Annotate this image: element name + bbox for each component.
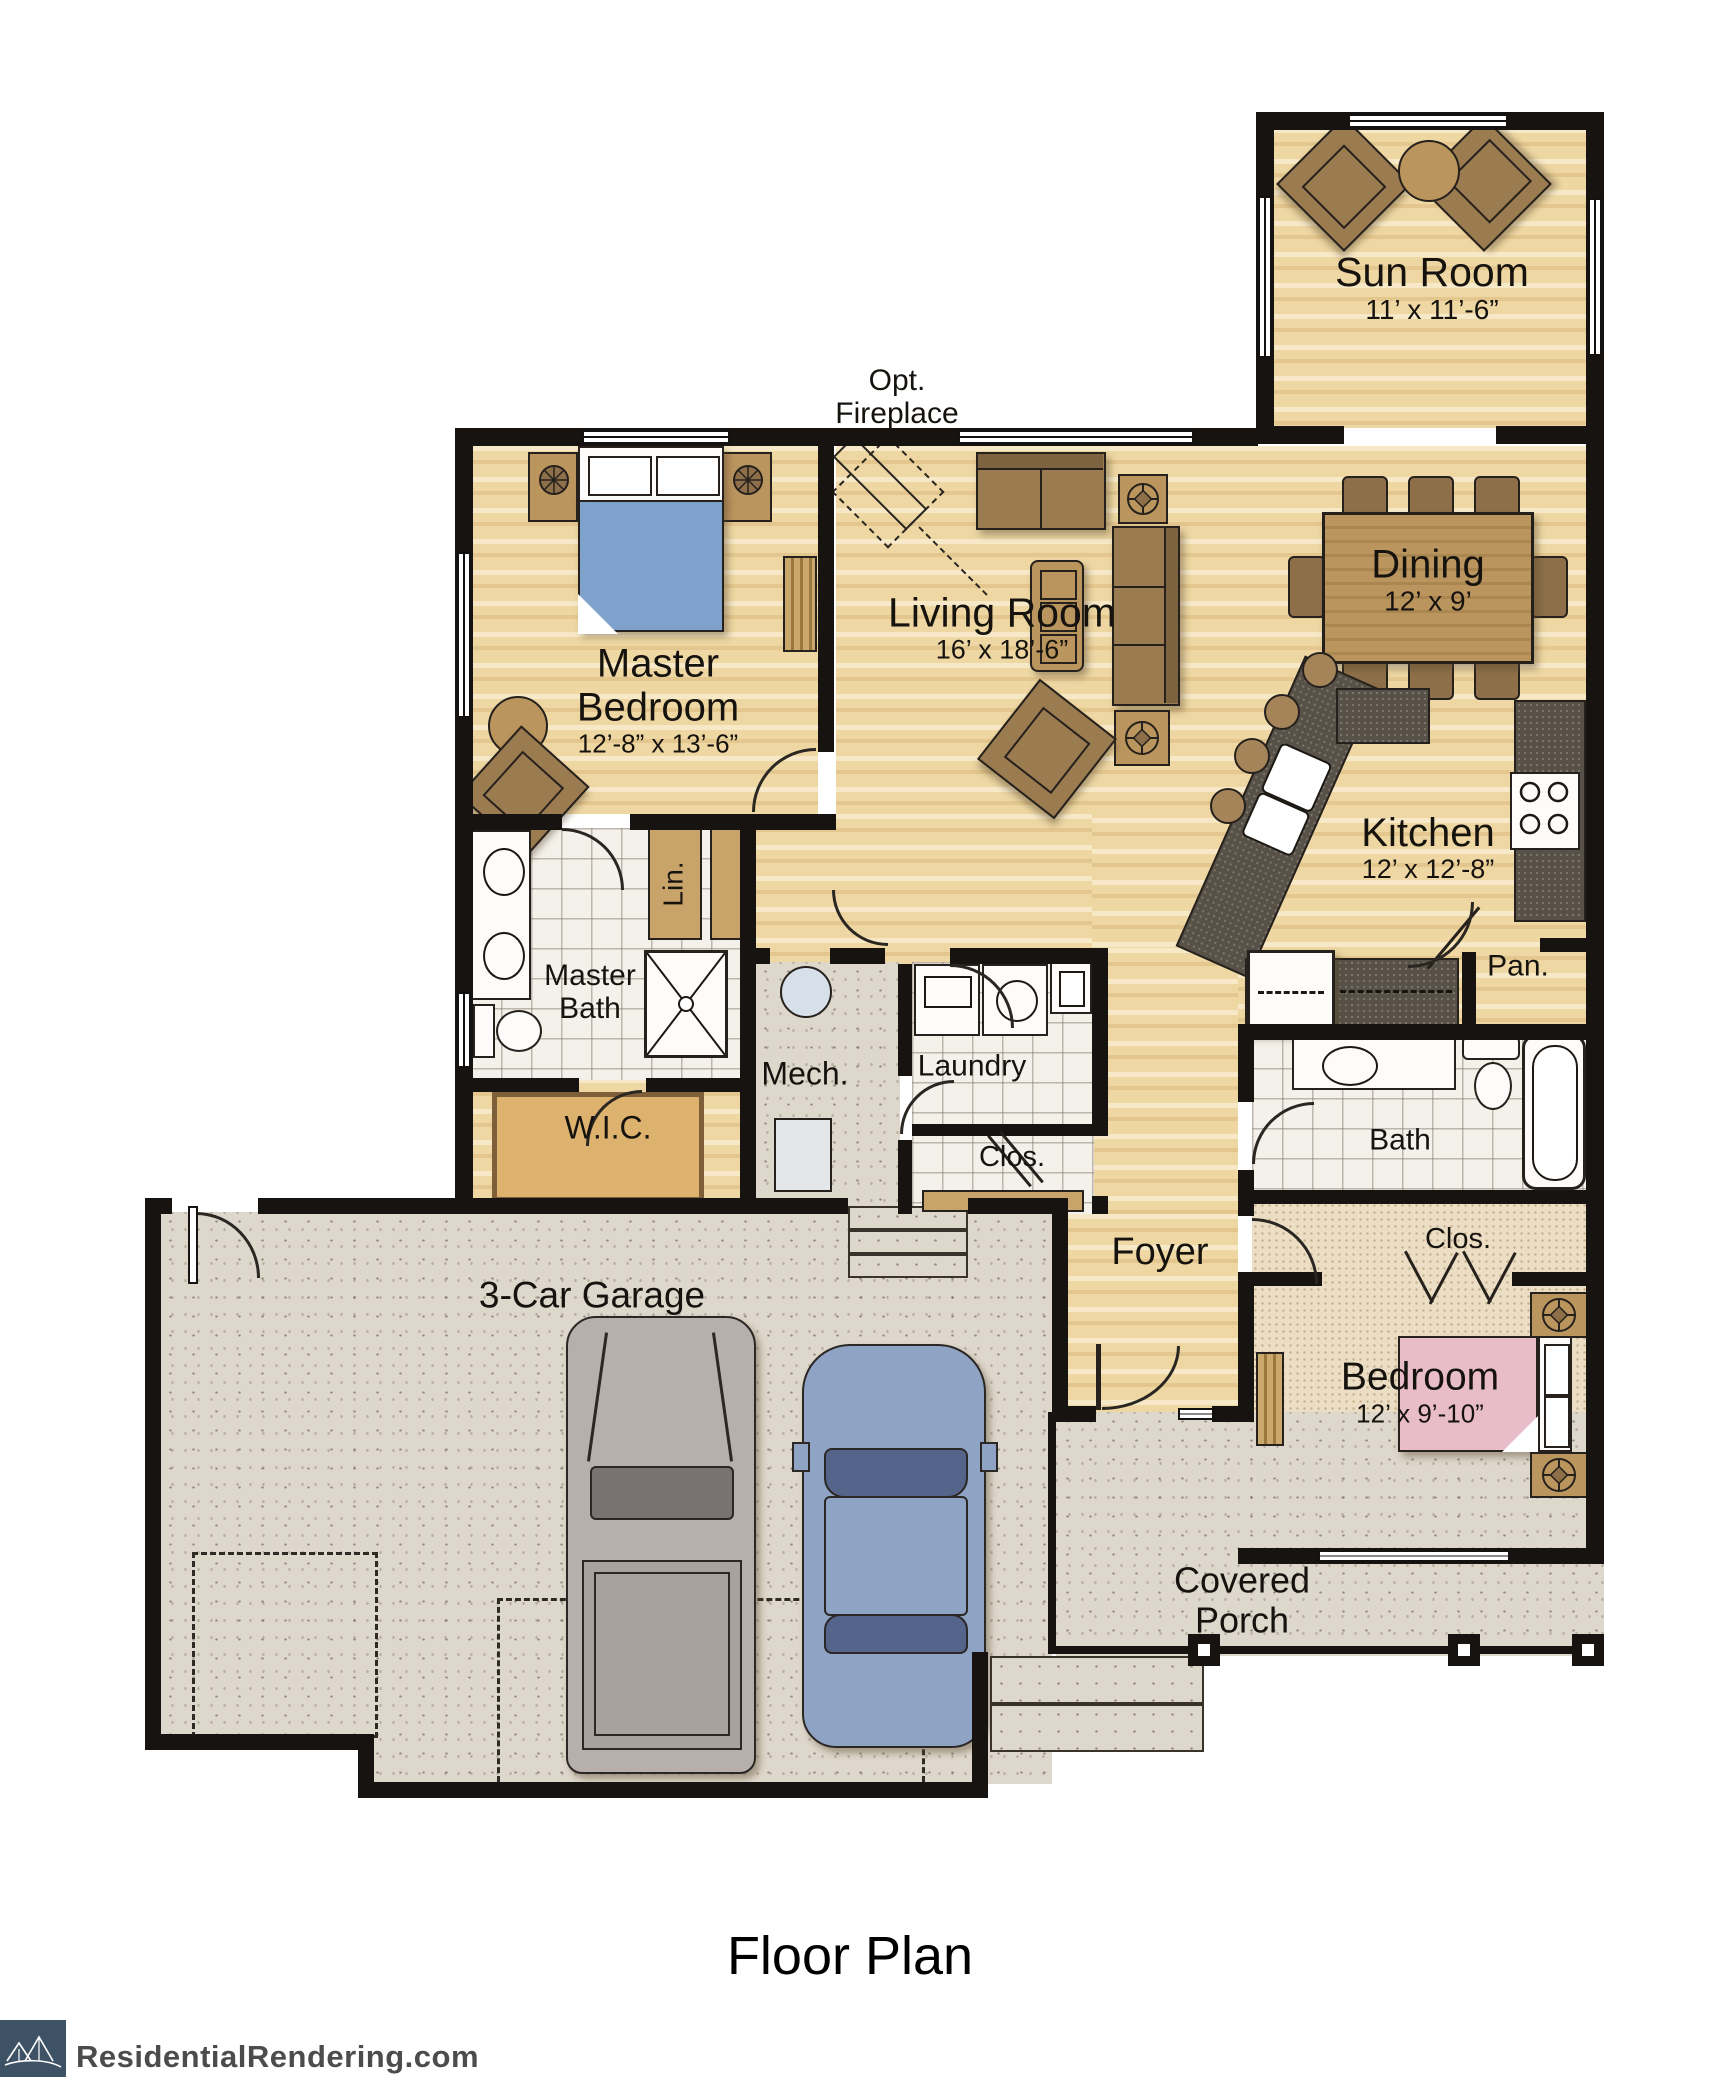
- garage-entry-step-2: [848, 1230, 968, 1254]
- truck-hood-line-right: [712, 1332, 733, 1461]
- room-dims: 12’ x 12’-8”: [1362, 855, 1495, 885]
- room-name: Lin.: [659, 861, 690, 906]
- shower-glass-x: [647, 953, 725, 1055]
- sheet-fold: [578, 594, 618, 634]
- master-bed-headboard: [578, 446, 724, 502]
- truck-windshield: [590, 1466, 734, 1520]
- floor-foyer-upper: [1092, 948, 1238, 1214]
- wall: [1586, 428, 1604, 1564]
- room-name: Covered Porch: [1152, 1560, 1332, 1639]
- chair-seat: [1302, 144, 1387, 229]
- pillow: [1544, 1344, 1570, 1396]
- wall: [145, 1198, 161, 1750]
- residential-rendering-logo-icon: [0, 2020, 66, 2077]
- floor-hall: [756, 814, 1092, 964]
- utility-sink-basin: [1059, 971, 1085, 1007]
- wall: [898, 1140, 912, 1214]
- room-name: Pan.: [1487, 950, 1549, 983]
- guest-bed-pillows: [1538, 1336, 1572, 1452]
- room-name: Bath: [1369, 1124, 1431, 1157]
- front-door-leaf: [1096, 1344, 1101, 1410]
- porch-step-2: [990, 1704, 1204, 1752]
- car-roof: [824, 1496, 968, 1616]
- fan-decor-icon: [1124, 480, 1162, 523]
- room-name: Dining: [1371, 543, 1484, 587]
- label-bath: Bath: [1345, 1124, 1455, 1157]
- porch-left-edge: [1048, 1412, 1056, 1654]
- wall: [1052, 1198, 1068, 1414]
- room-name: W.I.C.: [564, 1110, 651, 1145]
- loveseat-seam: [1040, 468, 1042, 528]
- furnace: [774, 1118, 832, 1192]
- truck-hood-line-left: [587, 1332, 608, 1461]
- label-sun-room: Sun Room 11’ x 11’-6”: [1292, 250, 1572, 326]
- label-bedroom: Bedroom 12’ x 9’-10”: [1300, 1356, 1540, 1427]
- porch-post-corner: [1572, 1634, 1604, 1666]
- room-name: Laundry: [918, 1050, 1026, 1083]
- toilet-bowl: [1474, 1062, 1512, 1110]
- garage-bay-dashed-outline: [192, 1552, 378, 1738]
- window: [457, 992, 471, 1068]
- wall: [830, 948, 885, 964]
- wall: [1256, 426, 1344, 444]
- label-wic: W.I.C.: [538, 1110, 678, 1145]
- blue-car: [802, 1344, 986, 1748]
- chair-seat: [1447, 139, 1532, 224]
- plant-icon: [536, 462, 572, 503]
- corner-shower: [644, 950, 728, 1058]
- door-swing-mech-closet: [900, 1080, 954, 1134]
- wall: [258, 1198, 848, 1214]
- garage-notch-cutout: [145, 1750, 358, 1814]
- wall: [950, 948, 1108, 964]
- label-garage: 3-Car Garage: [442, 1276, 742, 1317]
- room-name: Clos.: [1425, 1224, 1491, 1256]
- bath-vanity: [1292, 1036, 1456, 1090]
- refrigerator: [1247, 950, 1335, 1034]
- bathtub: [1522, 1034, 1586, 1190]
- plant-icon: [730, 462, 766, 503]
- sofa-back: [1164, 528, 1178, 703]
- room-name: Master Bath: [528, 959, 653, 1025]
- bathtub-basin: [1532, 1045, 1578, 1181]
- window: [1258, 196, 1272, 358]
- wall: [1512, 1272, 1604, 1286]
- firewood-log: [783, 556, 817, 652]
- wall: [145, 1734, 372, 1750]
- room-dims: 12’ x 9’-10”: [1356, 1399, 1484, 1428]
- house-logo-icon: [3, 2025, 63, 2073]
- car-mirror-right: [980, 1442, 998, 1472]
- label-master-bedroom: Master Bedroom 12’-8” x 13’-6”: [551, 642, 766, 759]
- room-name: Foyer: [1111, 1232, 1208, 1274]
- fridge-dashed-line: [1258, 991, 1324, 994]
- page-title: Floor Plan: [727, 1925, 973, 1987]
- bar-stool: [1210, 788, 1246, 824]
- pickup-truck: [566, 1316, 756, 1774]
- room-name: Master Bedroom: [551, 642, 766, 730]
- label-linen: Lin.: [659, 839, 690, 929]
- room-name: Sun Room: [1335, 250, 1529, 295]
- wall: [740, 814, 756, 1214]
- bar-stool: [1234, 738, 1270, 774]
- wall: [1052, 1406, 1096, 1422]
- pillow-right: [656, 456, 720, 496]
- label-dining: Dining 12’ x 9’: [1318, 543, 1538, 618]
- fan-decor-icon: [1538, 1294, 1580, 1341]
- room-dims: 11’ x 11’-6”: [1365, 295, 1498, 326]
- car-windshield: [824, 1448, 968, 1498]
- utility-sink: [1050, 962, 1092, 1014]
- wall: [1238, 1024, 1604, 1040]
- room-name: Kitchen: [1361, 811, 1494, 855]
- wall: [1092, 948, 1108, 1136]
- toilet-tank: [473, 1004, 495, 1058]
- wall: [1238, 1190, 1604, 1204]
- front-door-sidelight: [1178, 1408, 1214, 1420]
- label-living-room: Living Room 16’ x 18’-6”: [862, 591, 1142, 666]
- room-dims: 12’ x 9’: [1384, 587, 1472, 618]
- garage-dashed-divider-left: [497, 1598, 500, 1782]
- label-bedroom-closet: Clos.: [1403, 1224, 1513, 1256]
- room-name: Mech.: [761, 1056, 848, 1091]
- wall: [630, 814, 836, 830]
- firewood-log: [1256, 1352, 1284, 1446]
- window: [457, 552, 471, 718]
- label-laundry: Laundry: [892, 1050, 1052, 1083]
- counter-dashed-line: [1340, 990, 1452, 993]
- branding: ResidentialRendering.com: [0, 2020, 479, 2077]
- wall: [968, 1198, 1052, 1214]
- bar-stool: [1302, 652, 1338, 688]
- label-pantry: Pan.: [1463, 950, 1573, 983]
- wall: [740, 948, 770, 964]
- sink-oval: [483, 932, 525, 980]
- room-name: Bedroom: [1341, 1356, 1499, 1399]
- sunroom-round-table: [1398, 140, 1460, 202]
- annotation-text: Opt. Fireplace: [817, 364, 977, 430]
- garage-entry-step-3: [848, 1254, 968, 1278]
- wall: [455, 1078, 579, 1092]
- label-opt-fireplace: Opt. Fireplace: [817, 364, 977, 430]
- chair-seat: [1004, 707, 1091, 794]
- wall: [1238, 1284, 1254, 1412]
- floor-plan-canvas: Sun Room 11’ x 11’-6” Opt. Fireplace Liv…: [0, 0, 1709, 2080]
- sofa-seam-1: [1114, 586, 1164, 588]
- car-rear-window: [824, 1614, 968, 1654]
- fan-decor-icon: [1122, 718, 1162, 763]
- window: [1588, 198, 1602, 356]
- wall: [455, 814, 562, 830]
- water-heater: [780, 966, 832, 1018]
- window: [1318, 1550, 1510, 1562]
- room-name: 3-Car Garage: [479, 1276, 705, 1317]
- wall: [358, 1782, 988, 1798]
- porch-step-1: [990, 1656, 1204, 1704]
- garage-service-door-leaf: [188, 1206, 198, 1284]
- porch-post-mid: [1448, 1634, 1480, 1666]
- label-covered-porch: Covered Porch: [1152, 1560, 1332, 1639]
- room-name: Clos.: [979, 1142, 1045, 1174]
- master-bed: [578, 500, 724, 632]
- truck-bed-inner: [594, 1572, 730, 1736]
- label-foyer: Foyer: [1085, 1232, 1235, 1274]
- car-mirror-left: [792, 1442, 810, 1472]
- label-master-bath: Master Bath: [528, 959, 653, 1025]
- pillow: [1544, 1396, 1570, 1448]
- dining-chair: [1474, 658, 1520, 700]
- wall: [1092, 1196, 1108, 1214]
- wall: [972, 1652, 988, 1798]
- label-kitchen: Kitchen 12’ x 12’-8”: [1298, 811, 1558, 885]
- window: [1348, 114, 1508, 128]
- porch-edge: [1056, 1646, 1604, 1654]
- room-name: Living Room: [888, 591, 1116, 636]
- sink-oval: [1322, 1046, 1378, 1086]
- room-dims: 12’-8” x 13’-6”: [578, 730, 738, 759]
- window: [958, 430, 1194, 444]
- sink-oval: [483, 848, 525, 896]
- wall: [818, 446, 834, 752]
- kitchen-counter-top-arm: [1336, 688, 1430, 744]
- room-dims: 16’ x 18’-6”: [936, 636, 1069, 666]
- label-mech: Mech.: [740, 1056, 870, 1091]
- bar-stool: [1264, 694, 1300, 730]
- loveseat: [976, 452, 1106, 530]
- master-vanity: [471, 830, 531, 1000]
- pillow-left: [588, 456, 652, 496]
- label-hall-closet: Clos.: [957, 1142, 1067, 1174]
- brand-site-text: ResidentialRendering.com: [76, 2039, 479, 2077]
- fan-decor-icon: [1538, 1454, 1580, 1501]
- window: [582, 430, 730, 444]
